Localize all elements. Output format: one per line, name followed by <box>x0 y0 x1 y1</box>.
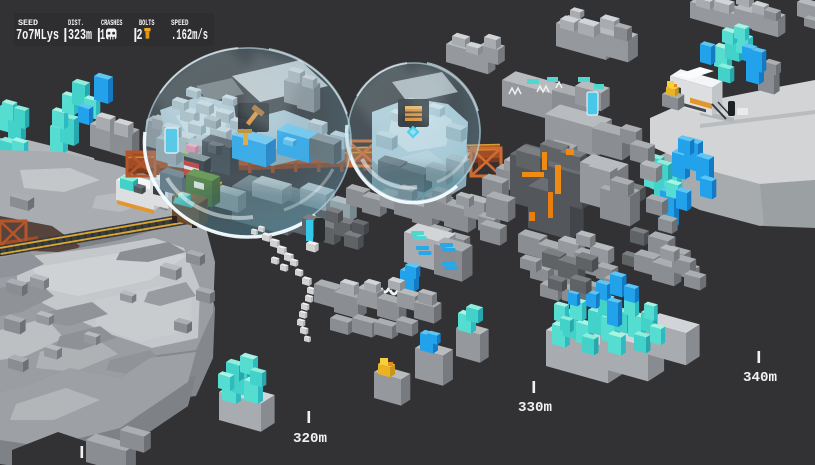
svg-text:1: 1 <box>100 28 105 44</box>
svg-text:SEED: SEED <box>18 19 38 28</box>
svg-text:330m: 330m <box>518 401 552 416</box>
svg-text:323m: 323m <box>68 28 92 44</box>
svg-text:320m: 320m <box>293 432 327 447</box>
svg-text:BOLTS: BOLTS <box>139 19 155 28</box>
svg-text:.162m/s: .162m/s <box>171 28 208 44</box>
svg-text:340m: 340m <box>743 371 777 386</box>
svg-text:7o7MLys: 7o7MLys <box>16 28 59 44</box>
svg-text:DIST.: DIST. <box>68 19 84 28</box>
svg-text:CRASHES: CRASHES <box>101 19 123 28</box>
svg-text:SPEED: SPEED <box>171 19 189 28</box>
svg-text:2: 2 <box>137 28 143 44</box>
